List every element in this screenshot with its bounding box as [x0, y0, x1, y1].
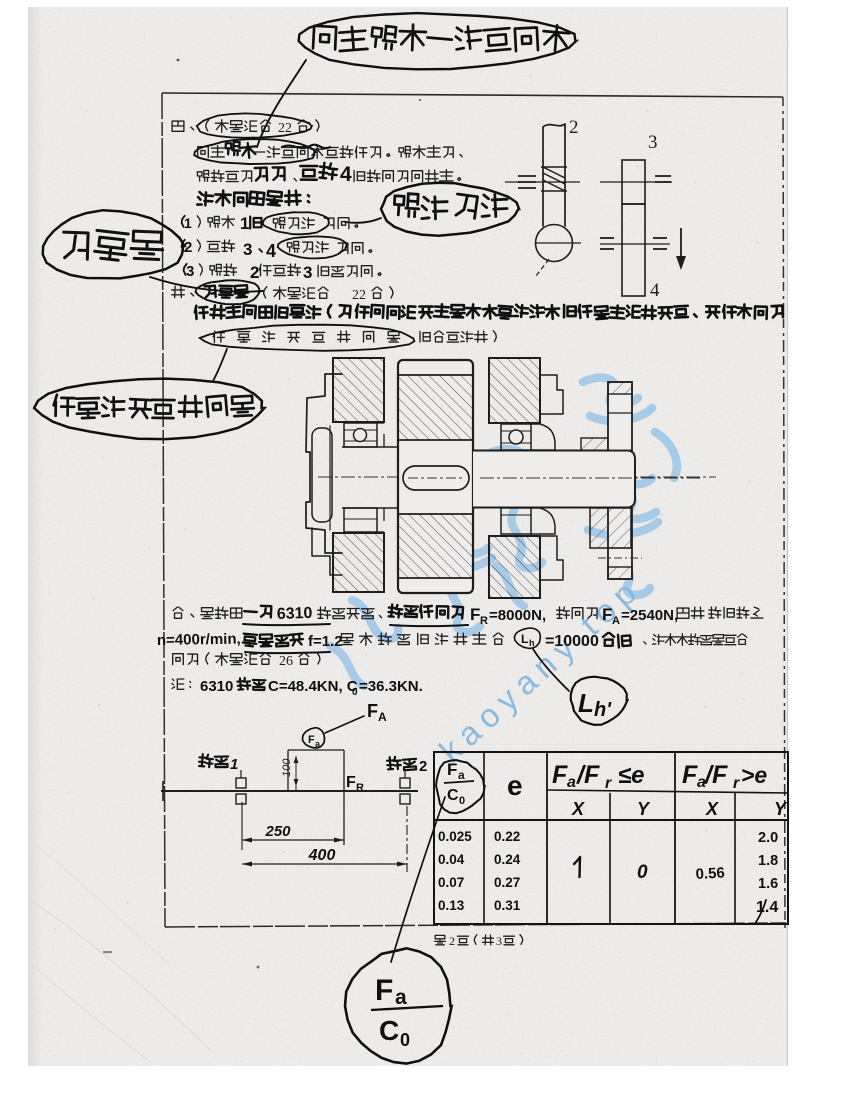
svg-text:=36.3KN.: =36.3KN.: [359, 678, 423, 695]
svg-text:F: F: [682, 761, 698, 789]
svg-text:h': h': [594, 699, 612, 721]
svg-text:2: 2: [419, 758, 427, 775]
svg-text:1: 1: [184, 215, 192, 231]
svg-text:3: 3: [648, 132, 658, 153]
svg-text:3: 3: [243, 240, 252, 259]
svg-text:F: F: [367, 701, 378, 721]
svg-text:1: 1: [230, 756, 238, 773]
svg-text:F: F: [447, 760, 457, 779]
svg-text:400: 400: [308, 847, 336, 864]
svg-text:C: C: [447, 787, 459, 804]
svg-text:a: a: [458, 768, 465, 782]
svg-text:0: 0: [459, 795, 465, 807]
svg-text:A: A: [612, 615, 620, 627]
svg-text:1.4: 1.4: [756, 899, 778, 916]
svg-text:0.56: 0.56: [695, 864, 725, 883]
svg-text:6310: 6310: [277, 605, 313, 623]
svg-text:4: 4: [266, 241, 276, 261]
svg-text:1: 1: [240, 214, 249, 233]
svg-text:0.07: 0.07: [438, 875, 464, 890]
svg-text:2: 2: [250, 263, 259, 282]
svg-text:2: 2: [449, 934, 455, 948]
svg-text:R: R: [480, 615, 488, 627]
svg-text:0.025: 0.025: [438, 829, 472, 844]
svg-text:a: a: [395, 986, 407, 1009]
svg-text:F: F: [470, 605, 480, 624]
svg-text:F: F: [346, 774, 356, 791]
svg-text:h: h: [529, 638, 535, 648]
svg-text:250: 250: [264, 823, 291, 840]
svg-text:Y: Y: [774, 799, 788, 819]
svg-text:2.0: 2.0: [758, 830, 778, 846]
svg-text:n=400r/min,: n=400r/min,: [157, 631, 241, 649]
svg-text:26: 26: [279, 654, 293, 669]
svg-text:L: L: [521, 632, 528, 646]
svg-text:X: X: [705, 799, 719, 819]
svg-text:F: F: [602, 605, 612, 624]
svg-text:C=48.4KN, C: C=48.4KN, C: [268, 678, 358, 695]
svg-text:F: F: [552, 761, 568, 789]
svg-text:0.13: 0.13: [438, 898, 465, 913]
svg-text:22: 22: [352, 288, 366, 303]
svg-text:0.04: 0.04: [438, 852, 465, 867]
svg-text:3: 3: [303, 263, 312, 282]
svg-text:F: F: [375, 974, 393, 1007]
svg-text:X: X: [571, 799, 585, 819]
svg-text:r: r: [733, 775, 740, 792]
svg-text:0: 0: [400, 1030, 410, 1050]
svg-text:≤e: ≤e: [618, 762, 645, 789]
svg-text:/F: /F: [576, 761, 600, 789]
svg-text:6310: 6310: [200, 678, 233, 695]
svg-text:2: 2: [184, 239, 192, 256]
svg-text:Y: Y: [637, 799, 651, 819]
svg-text:0.24: 0.24: [494, 852, 521, 867]
svg-text:0.22: 0.22: [494, 829, 520, 844]
svg-text:=8000N,: =8000N,: [489, 607, 546, 624]
svg-text:e: e: [507, 770, 523, 801]
svg-text:0: 0: [637, 862, 648, 883]
svg-text:0: 0: [352, 687, 358, 698]
svg-text:2: 2: [569, 117, 579, 138]
svg-text:r: r: [605, 775, 612, 792]
svg-text:/F: /F: [704, 761, 728, 789]
svg-text:4: 4: [650, 280, 660, 301]
svg-text:C: C: [379, 1015, 399, 1046]
svg-text:100: 100: [281, 758, 293, 777]
svg-text:1.6: 1.6: [758, 876, 778, 892]
svg-text:F: F: [308, 734, 315, 746]
svg-text:1.8: 1.8: [758, 853, 778, 869]
svg-text:3: 3: [496, 934, 502, 948]
svg-text:0.31: 0.31: [494, 898, 521, 913]
svg-text:A: A: [378, 710, 387, 724]
svg-text:3: 3: [186, 263, 194, 280]
svg-text:L: L: [578, 688, 594, 718]
svg-text:>e: >e: [741, 762, 767, 788]
svg-text:a: a: [567, 774, 576, 791]
svg-text:4: 4: [340, 163, 352, 186]
svg-text:R: R: [356, 782, 364, 794]
svg-text:0.27: 0.27: [494, 875, 520, 890]
svg-text:f=1.2: f=1.2: [308, 633, 343, 650]
svg-text:=2540N,: =2540N,: [621, 607, 678, 624]
svg-text:=10000: =10000: [545, 633, 599, 650]
